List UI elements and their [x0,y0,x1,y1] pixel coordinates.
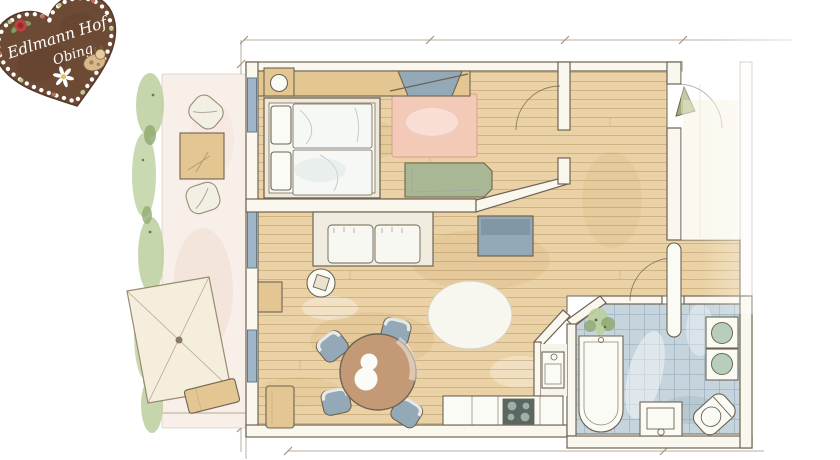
kitchen-wall [534,342,541,396]
wall-desk [258,282,282,312]
duvet [293,104,372,148]
bathroom-door-leaf [667,243,681,337]
bathtub [579,336,623,432]
burner [508,402,517,411]
pillow [271,106,291,144]
shower-tray [640,402,682,436]
bench [266,386,294,428]
floor-plan-page: Edlmann Hof Obing [0,0,840,460]
top-exterior-wall [246,62,682,71]
burner [508,414,515,421]
gingerbread-heart-logo: Edlmann Hof Obing [0,0,136,125]
bedside-lamp [271,75,288,92]
hallway-wall-upper [558,62,570,130]
right-wall-upper [667,62,681,84]
bathroom-left-wall [567,324,576,436]
cooktop [503,399,534,424]
double-bed [264,98,380,198]
tv-screen [481,219,530,235]
hallway-wall-lower [558,158,570,184]
sofa [313,212,433,266]
bathroom-wall-top-left [600,296,662,304]
balcony-door-window [248,210,257,268]
desk-chair [398,71,462,96]
washbasin [712,323,733,344]
windows [248,78,257,382]
plate [355,368,378,391]
burner [523,403,530,410]
bathroom-bottom-wall [567,436,752,448]
washbasin [712,354,733,375]
floor-plan-illustration: Edlmann Hof Obing [0,0,840,460]
double-washbasin [706,317,738,380]
pillow [271,152,291,190]
garden-table [180,133,224,179]
bedroom-partition-wall [246,199,476,212]
bathroom-right-wall [740,296,752,448]
burner [521,413,530,422]
edge-fade [700,34,840,314]
parasol-pole [176,337,183,344]
balcony [127,73,246,433]
window [248,78,257,132]
oval-rug [428,281,512,349]
window [248,330,257,382]
right-wall [667,128,681,240]
pink-rug [392,94,477,157]
sofa-cushion [328,225,373,263]
